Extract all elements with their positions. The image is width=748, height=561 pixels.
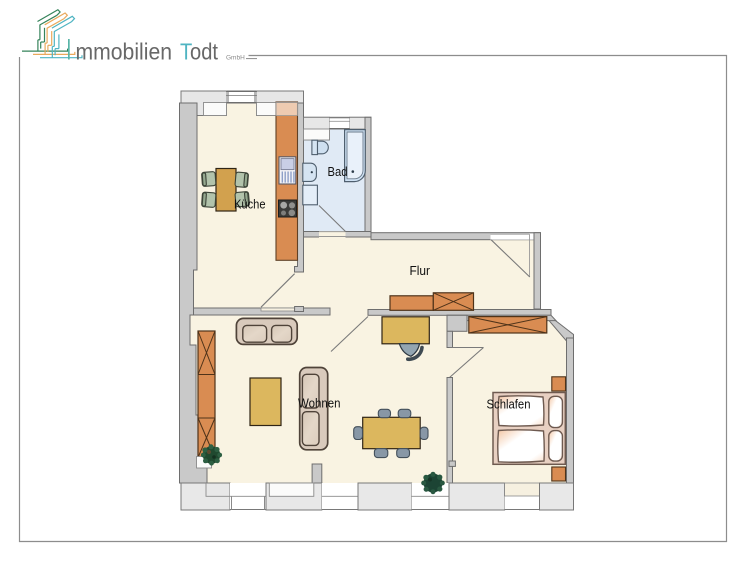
svg-text:Wohnen: Wohnen <box>298 397 341 411</box>
svg-text:GmbH: GmbH <box>226 55 245 62</box>
svg-text:Schlafen: Schlafen <box>487 398 531 412</box>
svg-text:Küche: Küche <box>234 198 266 212</box>
svg-text:Bad: Bad <box>328 165 348 179</box>
svg-text:Todt: Todt <box>180 39 218 65</box>
svg-text:mmobilien: mmobilien <box>76 39 173 65</box>
svg-text:Flur: Flur <box>410 264 431 278</box>
